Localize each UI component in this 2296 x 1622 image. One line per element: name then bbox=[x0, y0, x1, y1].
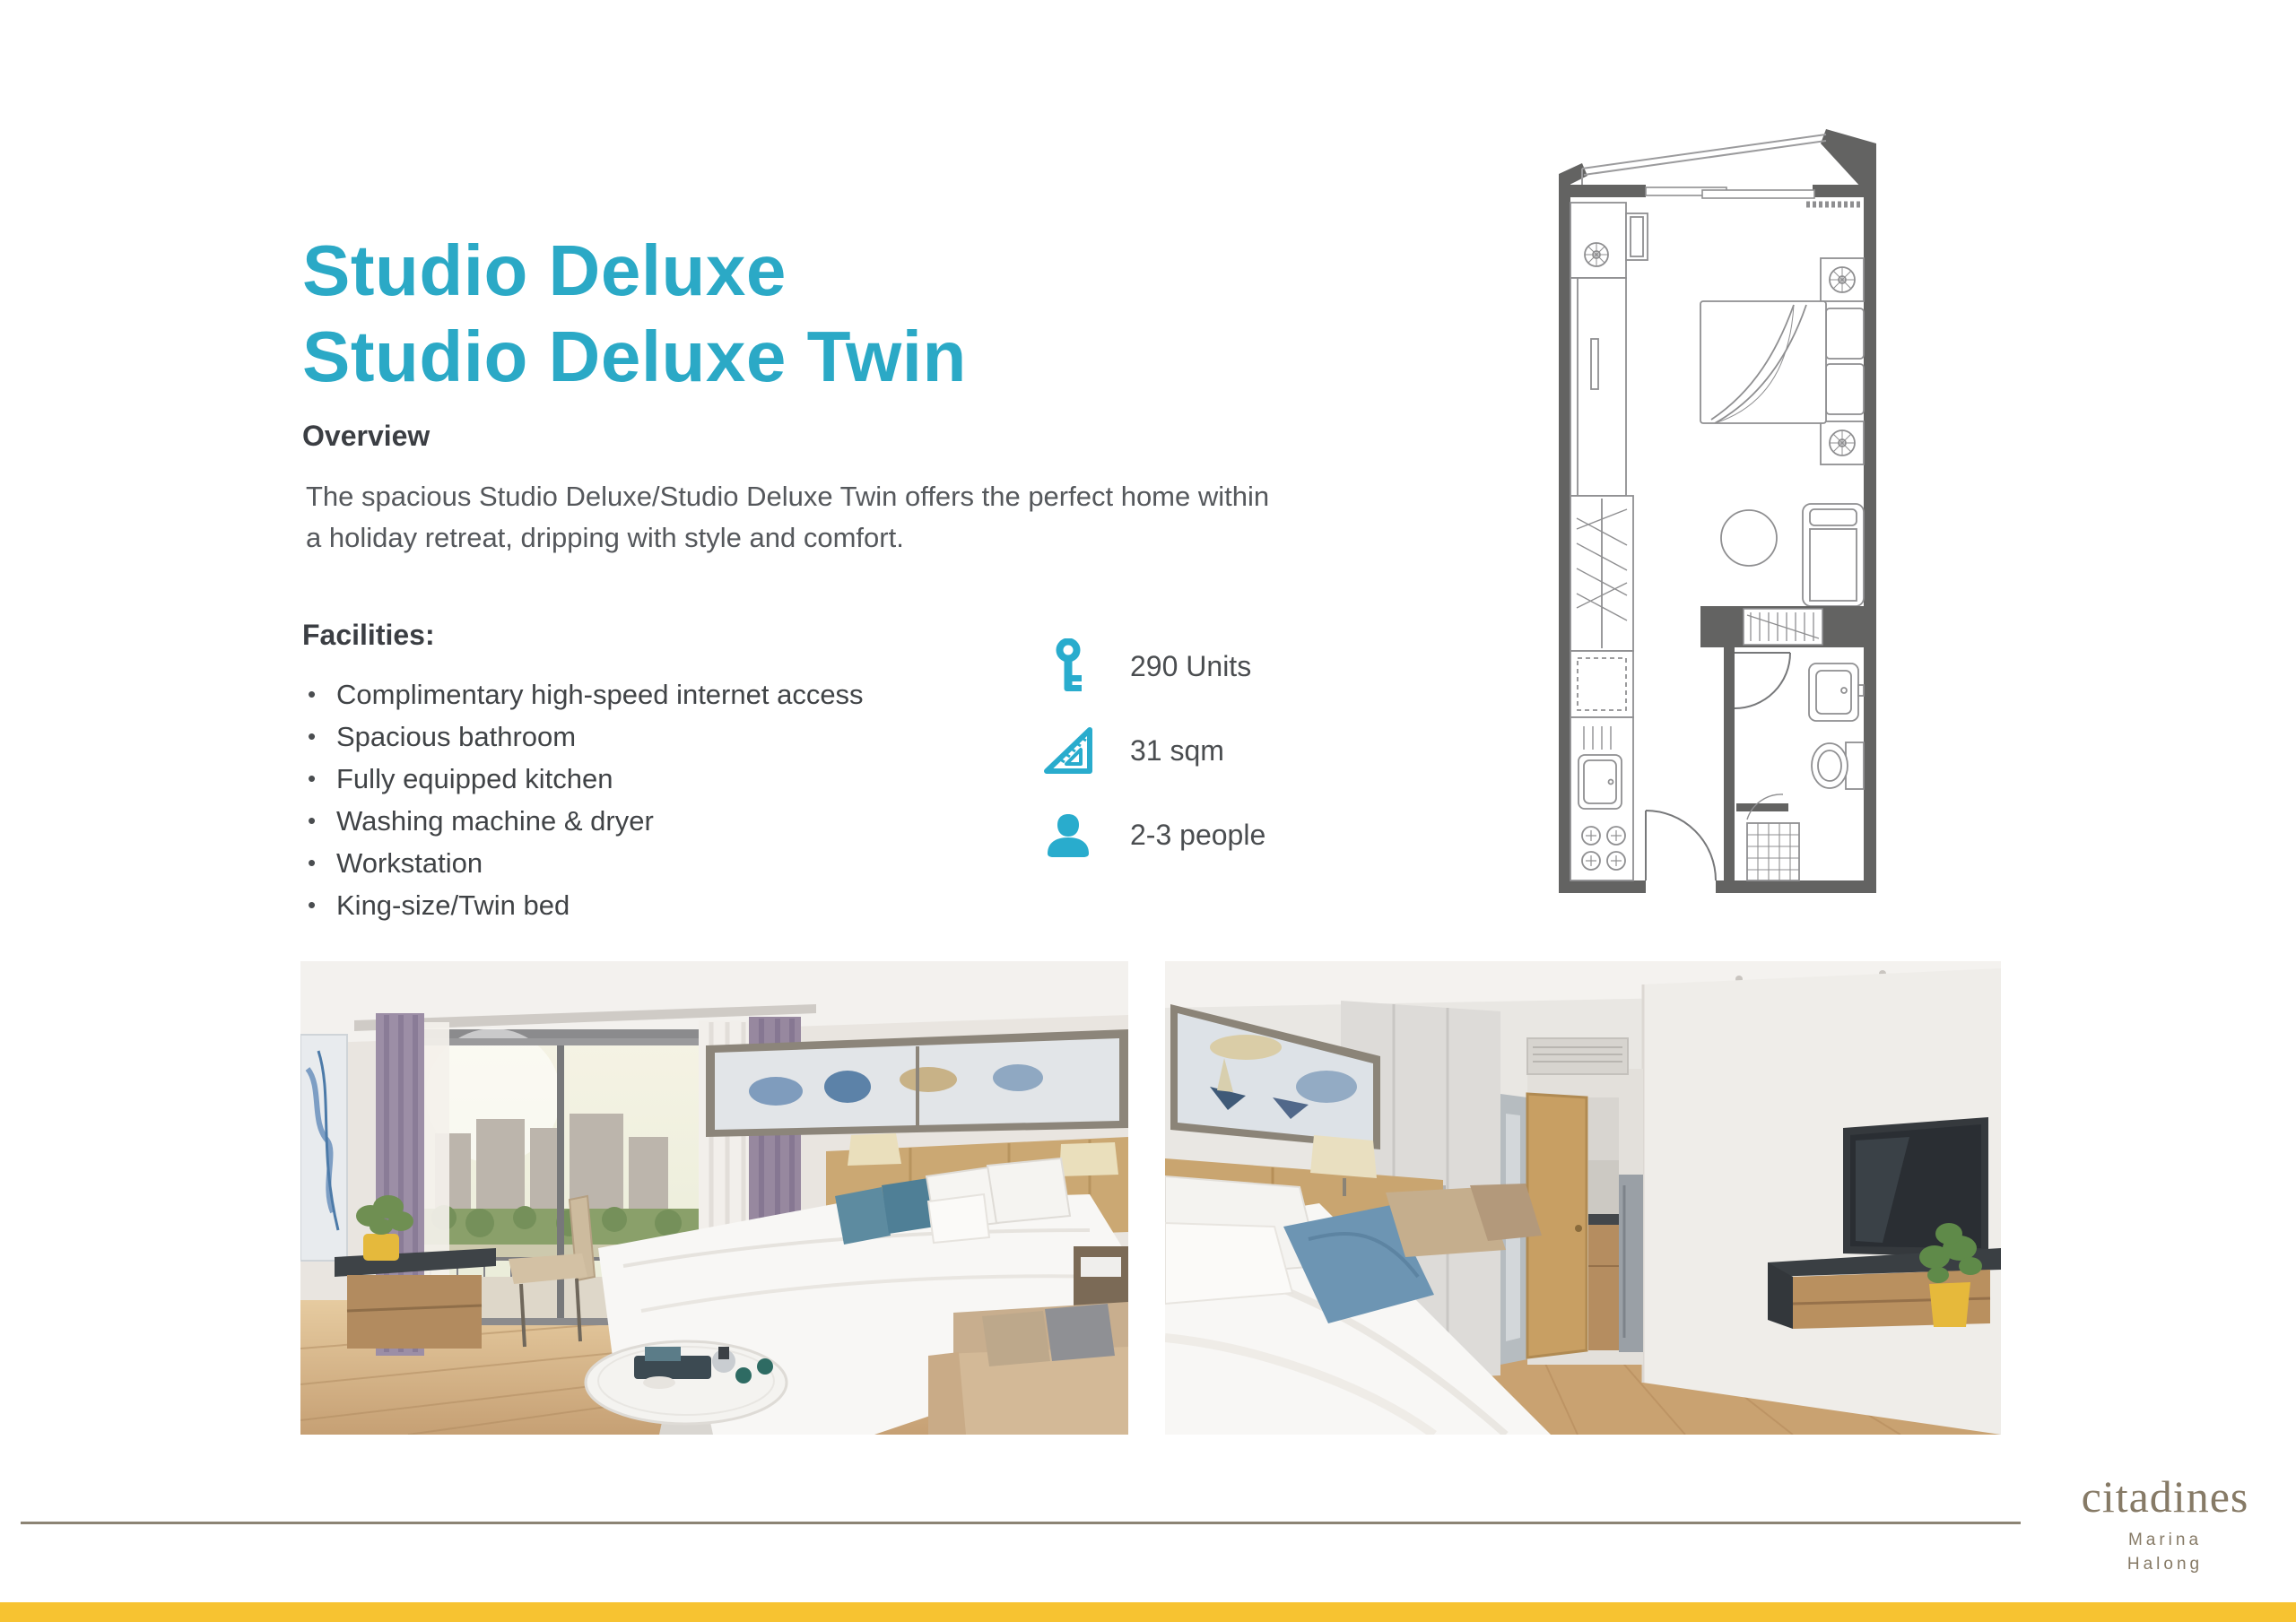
overview-heading: Overview bbox=[302, 420, 1289, 453]
stat-units-label: 290 Units bbox=[1130, 650, 1251, 683]
facilities-list: Complimentary high-speed internet access… bbox=[302, 673, 1109, 926]
floorplan-sofa-table bbox=[1721, 504, 1864, 606]
floorplan-entry-door bbox=[1646, 811, 1716, 880]
page-title: Studio Deluxe Studio Deluxe Twin bbox=[302, 228, 967, 400]
overview-body: The spacious Studio Deluxe/Studio Deluxe… bbox=[306, 476, 1289, 559]
stat-occupancy: 2-3 people bbox=[1040, 809, 1265, 861]
sofa bbox=[928, 1302, 1128, 1435]
brand-location-line2: Halong bbox=[2066, 1553, 2265, 1575]
nightstand bbox=[1074, 1246, 1128, 1311]
facility-item: Complimentary high-speed internet access bbox=[302, 673, 1109, 716]
title-line-1: Studio Deluxe bbox=[302, 228, 967, 314]
brochure-page: Studio Deluxe Studio Deluxe Twin Overvie… bbox=[0, 0, 2296, 1622]
stat-area-label: 31 sqm bbox=[1130, 734, 1224, 768]
footer-divider bbox=[21, 1522, 2021, 1524]
title-line-2: Studio Deluxe Twin bbox=[302, 314, 967, 400]
facility-item: Washing machine & dryer bbox=[302, 800, 1109, 842]
key-icon bbox=[1040, 640, 1096, 692]
stat-units: 290 Units bbox=[1040, 640, 1265, 692]
facilities-heading: Facilities: bbox=[302, 619, 1109, 652]
room-photo-entry-tv-view bbox=[1165, 961, 2001, 1435]
floorplan-bed bbox=[1700, 258, 1864, 464]
studio-floor-plan bbox=[1559, 124, 1878, 906]
stat-area: 31 sqm bbox=[1040, 724, 1265, 776]
facility-item: King-size/Twin bed bbox=[302, 884, 1109, 926]
brand-wordmark: citadines bbox=[2066, 1473, 2265, 1520]
footer-accent-bar bbox=[0, 1602, 2296, 1622]
room-photo-bedroom-window-view bbox=[300, 961, 1128, 1435]
brand-location-line1: Marina bbox=[2066, 1529, 2265, 1551]
facility-item: Fully equipped kitchen bbox=[302, 758, 1109, 800]
stat-occupancy-label: 2-3 people bbox=[1130, 819, 1265, 852]
facility-item: Workstation bbox=[302, 842, 1109, 884]
facilities-section: Facilities: Complimentary high-speed int… bbox=[302, 619, 1109, 926]
facility-item: Spacious bathroom bbox=[302, 716, 1109, 758]
citadines-logo: citadines Marina Halong bbox=[2066, 1473, 2265, 1575]
entry-corridor bbox=[1527, 1038, 1643, 1365]
set-square-icon bbox=[1040, 724, 1096, 776]
floorplan-wardrobe-kitchen bbox=[1570, 203, 1648, 880]
floorplan-bathroom bbox=[1724, 647, 1864, 880]
wall-art-abstract bbox=[300, 1035, 347, 1261]
floorplan-hall-closet bbox=[1700, 606, 1864, 647]
room-stats: 290 Units 31 sqm bbox=[1040, 640, 1265, 893]
overview-section: Overview The spacious Studio Deluxe/Stud… bbox=[302, 420, 1289, 559]
person-icon bbox=[1040, 809, 1096, 861]
